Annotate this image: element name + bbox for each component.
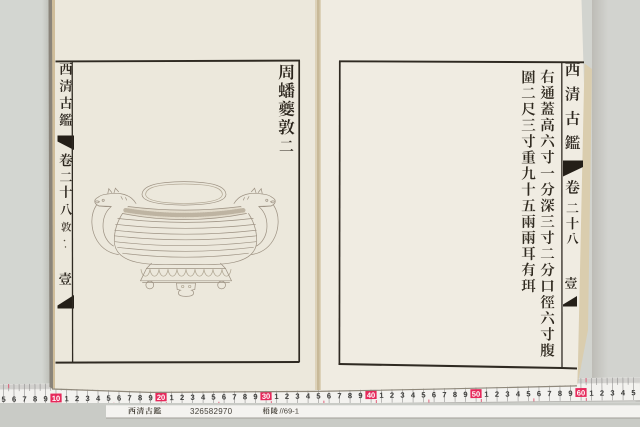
svg-text:6: 6 [432, 390, 436, 399]
svg-text:2: 2 [75, 394, 79, 403]
svg-text:6: 6 [327, 391, 331, 400]
svg-text:7: 7 [547, 389, 551, 398]
svg-text://69-1: //69-1 [280, 407, 299, 416]
svg-text:8: 8 [33, 395, 37, 404]
svg-text:20: 20 [157, 393, 166, 402]
svg-text:3: 3 [295, 392, 299, 401]
svg-text:7: 7 [442, 390, 446, 399]
svg-text:9: 9 [43, 394, 47, 403]
svg-text:7: 7 [127, 394, 131, 403]
svg-text:3: 3 [505, 390, 509, 399]
svg-text:50: 50 [472, 390, 481, 399]
svg-text:8: 8 [453, 390, 457, 399]
svg-text:6: 6 [537, 389, 541, 398]
svg-text:2: 2 [390, 391, 394, 400]
svg-text:6: 6 [12, 395, 16, 404]
svg-text:6: 6 [222, 393, 226, 402]
svg-text:8: 8 [558, 389, 562, 398]
svg-text:8: 8 [243, 392, 247, 401]
svg-text:3: 3 [400, 391, 404, 400]
svg-text:326582970: 326582970 [190, 407, 233, 416]
svg-text:2: 2 [285, 392, 289, 401]
svg-text:2: 2 [180, 393, 184, 402]
svg-text:60: 60 [577, 388, 586, 397]
svg-text:2: 2 [600, 389, 604, 398]
svg-text:3: 3 [190, 393, 194, 402]
svg-text:9: 9 [568, 389, 572, 398]
svg-text:3: 3 [610, 388, 614, 397]
svg-text:3: 3 [85, 394, 89, 403]
svg-text:7: 7 [232, 392, 236, 401]
svg-text:8: 8 [348, 391, 352, 400]
svg-text:6: 6 [117, 394, 121, 403]
svg-text:10: 10 [52, 394, 61, 403]
svg-text:30: 30 [262, 392, 271, 401]
svg-text:8: 8 [138, 393, 142, 402]
svg-text:9: 9 [463, 390, 467, 399]
svg-text:7: 7 [337, 391, 341, 400]
svg-text:40: 40 [367, 391, 376, 400]
svg-text:9: 9 [148, 393, 152, 402]
svg-text:9: 9 [253, 392, 257, 401]
svg-text:9: 9 [358, 391, 362, 400]
svg-text:2: 2 [495, 390, 499, 399]
svg-text:7: 7 [22, 395, 26, 404]
